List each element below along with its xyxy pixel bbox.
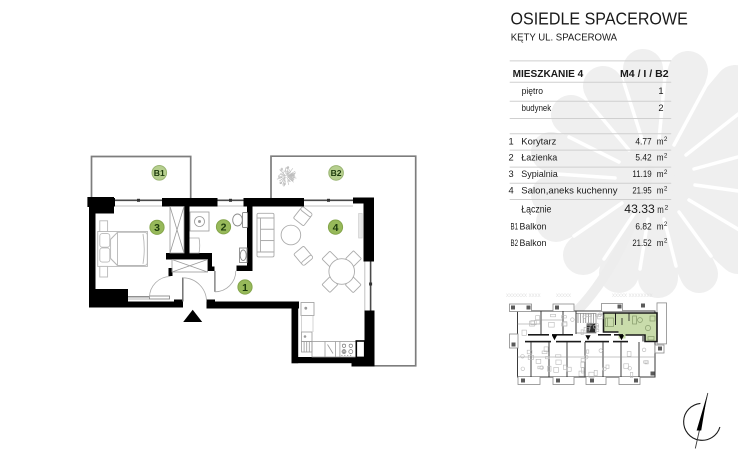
svg-text:3: 3: [154, 222, 160, 234]
svg-text:11.19: 11.19: [632, 169, 651, 179]
svg-text:Korytarz: Korytarz: [521, 136, 556, 146]
svg-text:2: 2: [221, 222, 227, 234]
svg-text:MIESZKANIE 4: MIESZKANIE 4: [513, 69, 584, 80]
svg-text:m: m: [657, 136, 664, 146]
svg-text:m: m: [657, 153, 664, 163]
svg-text:m: m: [657, 186, 664, 196]
svg-text:5.42: 5.42: [635, 153, 651, 163]
svg-text:1: 1: [242, 282, 248, 294]
svg-text:m: m: [657, 221, 664, 231]
svg-text:21.95: 21.95: [632, 186, 651, 196]
svg-text:m: m: [657, 205, 664, 216]
svg-text:1: 1: [509, 136, 514, 146]
svg-text:budynek: budynek: [522, 103, 552, 113]
svg-text:2: 2: [664, 153, 668, 160]
svg-text:3: 3: [509, 169, 514, 179]
svg-text:M4 / I / B2: M4 / I / B2: [620, 69, 669, 80]
svg-text:m: m: [657, 169, 664, 179]
svg-text:B1: B1: [511, 221, 519, 231]
svg-text:xxxxx: xxxxx: [556, 293, 571, 299]
svg-text:4.77: 4.77: [635, 136, 651, 146]
svg-text:2: 2: [664, 185, 668, 192]
svg-text:2: 2: [664, 136, 668, 143]
svg-text:2: 2: [664, 169, 668, 176]
svg-text:Sypialnia: Sypialnia: [521, 169, 558, 179]
svg-text:piętro: piętro: [522, 86, 543, 96]
svg-text:2: 2: [658, 103, 663, 113]
svg-text:B1: B1: [154, 168, 165, 178]
svg-text:Balkon: Balkon: [520, 221, 547, 231]
svg-text:xxxxx xxxxxxxx: xxxxx xxxxxxxx: [612, 293, 653, 299]
svg-text:KĘTY UL. SPACEROWA: KĘTY UL. SPACEROWA: [511, 32, 617, 43]
svg-text:Balkon: Balkon: [520, 238, 547, 248]
svg-text:6.82: 6.82: [635, 221, 651, 231]
svg-text:OSIEDLE SPACEROWE: OSIEDLE SPACEROWE: [511, 8, 688, 28]
svg-text:2: 2: [665, 205, 669, 212]
svg-text:B2: B2: [331, 168, 342, 178]
svg-text:1: 1: [658, 86, 663, 96]
svg-text:Łazienka: Łazienka: [521, 153, 558, 163]
svg-text:4: 4: [333, 222, 339, 234]
svg-text:43.33: 43.33: [624, 204, 655, 216]
svg-text:2: 2: [509, 153, 514, 163]
svg-text:m: m: [657, 238, 664, 248]
svg-text:B2: B2: [511, 238, 519, 248]
svg-text:21.52: 21.52: [632, 238, 651, 248]
svg-text:Łącznie: Łącznie: [521, 205, 552, 216]
svg-text:2: 2: [664, 238, 668, 245]
svg-text:2: 2: [664, 221, 668, 228]
svg-text:Salon,aneks kuchenny: Salon,aneks kuchenny: [521, 186, 618, 196]
svg-text:xxxxxxx xxxx: xxxxxxx xxxx: [506, 293, 541, 299]
svg-text:4: 4: [509, 186, 514, 196]
